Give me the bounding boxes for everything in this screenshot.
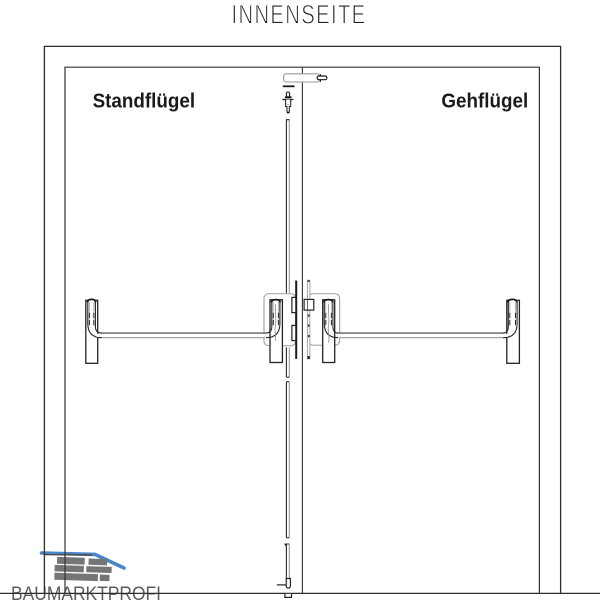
- svg-text:BAUMARKTPROFI: BAUMARKTPROFI: [11, 584, 161, 600]
- svg-text:Standflügel: Standflügel: [93, 89, 196, 112]
- svg-text:INNENSEITE: INNENSEITE: [232, 0, 367, 30]
- svg-text:Gehflügel: Gehflügel: [441, 89, 528, 112]
